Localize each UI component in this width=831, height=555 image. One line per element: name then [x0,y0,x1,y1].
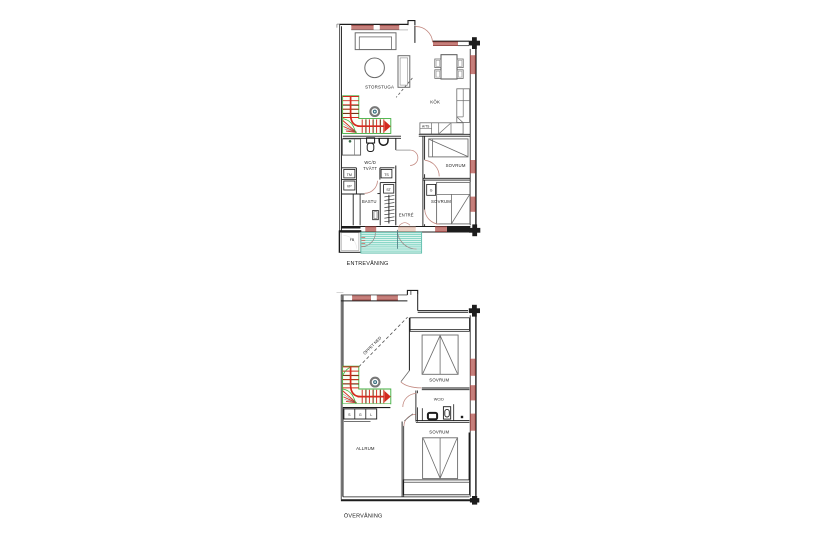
svg-text:SOVRUM: SOVRUM [431,199,451,204]
svg-text:SOVRUM: SOVRUM [429,429,449,434]
svg-text:FB: FB [350,238,355,242]
svg-text:WC/D: WC/D [364,160,376,165]
svg-text:TS: TS [384,173,389,177]
svg-text:A/TS: A/TS [422,124,430,128]
svg-text:VP: VP [347,185,352,189]
svg-text:G: G [430,189,433,193]
svg-text:G: G [359,413,362,417]
svg-text:ST: ST [386,188,391,192]
svg-text:STORSTUGA: STORSTUGA [365,85,394,90]
svg-text:L: L [370,413,372,417]
svg-text:ENTRÉ: ENTRÉ [399,213,414,218]
svg-text:SOVRUM: SOVRUM [446,163,466,168]
svg-text:TVÄTT: TVÄTT [363,166,377,171]
svg-text:ENTREVÅNING: ENTREVÅNING [347,260,389,267]
svg-text:ALLRUM: ALLRUM [356,446,375,451]
svg-text:WC/D: WC/D [434,398,444,402]
svg-text:SOVRUM: SOVRUM [429,377,449,382]
svg-text:ÖVERVÅNING: ÖVERVÅNING [344,512,383,519]
svg-text:S: S [348,413,351,417]
svg-text:KÖK: KÖK [430,99,440,104]
svg-text:BASTU: BASTU [362,199,377,204]
svg-text:TM: TM [347,173,352,177]
